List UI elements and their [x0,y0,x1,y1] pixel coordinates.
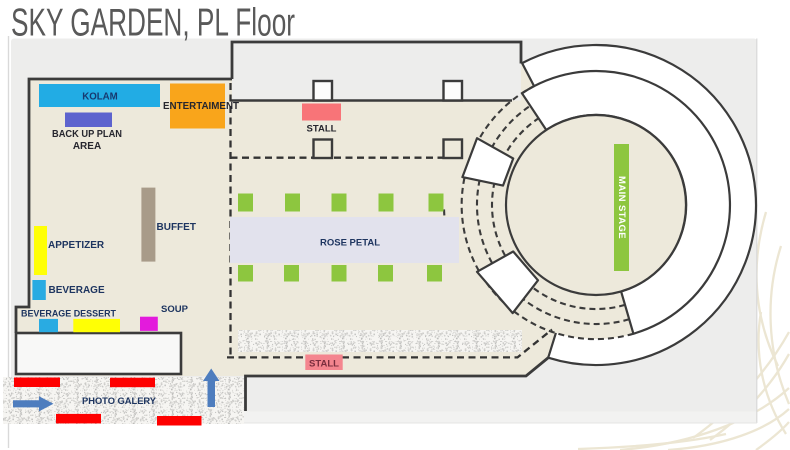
svg-text:PHOTO GALERY: PHOTO GALERY [82,396,157,407]
svg-text:APPETIZER: APPETIZER [48,240,105,251]
svg-text:KOLAM: KOLAM [82,92,118,103]
svg-text:BACK UP PLAN: BACK UP PLAN [52,129,122,140]
svg-text:STALL: STALL [309,359,339,370]
svg-text:AREA: AREA [73,141,101,152]
svg-text:ENTERTAIMENT: ENTERTAIMENT [163,101,239,112]
svg-text:STALL: STALL [307,124,337,135]
svg-text:SOUP: SOUP [161,304,189,315]
svg-text:SKY GARDEN, PL Floor: SKY GARDEN, PL Floor [11,2,295,45]
svg-text:BEVERAGE DESSERT: BEVERAGE DESSERT [21,309,116,320]
svg-text:BUFFET: BUFFET [157,222,196,233]
svg-text:ROSE PETAL: ROSE PETAL [320,238,380,249]
svg-text:MAIN STAGE: MAIN STAGE [616,176,627,239]
svg-text:BEVERAGE: BEVERAGE [49,285,105,296]
